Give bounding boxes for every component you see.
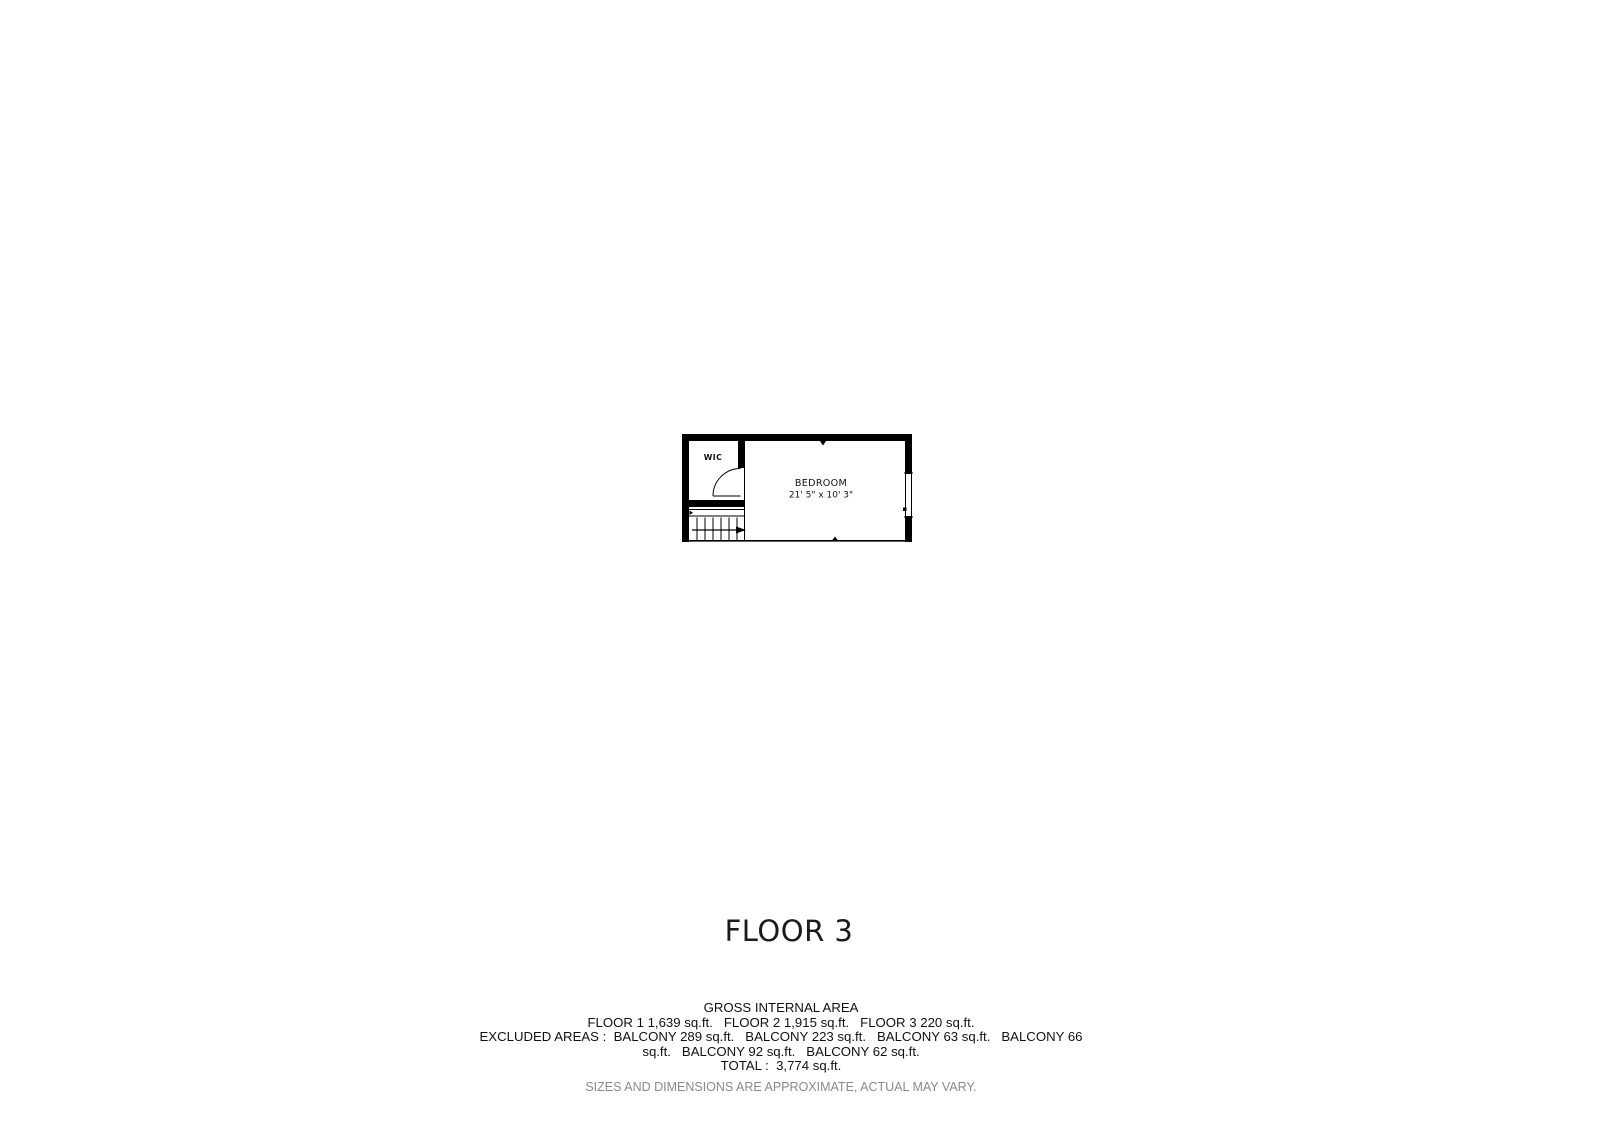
wall-wic-bottom [682,500,745,507]
disclaimer-text: SIZES AND DIMENSIONS ARE APPROXIMATE, AC… [585,1080,976,1094]
wall-top [682,434,912,441]
tick-bottom-center [832,537,838,541]
wall-right-lower [905,517,912,542]
wall-wic-right-upper [738,441,745,468]
stair-landing [688,510,745,517]
tick-top-center [820,441,826,446]
stair-treads [697,518,737,541]
bedroom-dimensions-label: 21' 5" x 10' 3" [789,491,853,501]
wic-room-label: WIC [704,453,722,462]
bedroom-room-label: BEDROOM [795,478,847,489]
floorplan-drawing: WIC BEDROOM 21' 5" x 10' 3" [680,430,916,548]
door-swing-arc [713,469,741,497]
floor-title-wrap: FLOOR 3 [0,914,1578,948]
gross-internal-area-heading: GROSS INTERNAL AREA [0,1001,1562,1016]
area-summary: GROSS INTERNAL AREA FLOOR 1 1,639 sq.ft.… [0,1001,1562,1074]
stair-landing-marker [690,511,694,516]
floor-areas-line: FLOOR 1 1,639 sq.ft. FLOOR 2 1,915 sq.ft… [0,1016,1562,1031]
floorplan-page: { "page": { "background": "#ffffff", "in… [0,0,1600,1131]
wall-right-upper [905,434,912,473]
excluded-areas-line-1: EXCLUDED AREAS : BALCONY 289 sq.ft. BALC… [0,1030,1562,1045]
excluded-areas-line-2: sq.ft. BALCONY 92 sq.ft. BALCONY 62 sq.f… [0,1045,1562,1060]
floor-title: FLOOR 3 [725,914,854,948]
disclaimer-wrap: SIZES AND DIMENSIONS ARE APPROXIMATE, AC… [0,1078,1562,1096]
wall-left [682,434,689,542]
window [903,473,913,517]
total-area-line: TOTAL : 3,774 sq.ft. [0,1059,1562,1074]
window-marker-dot [903,508,907,512]
